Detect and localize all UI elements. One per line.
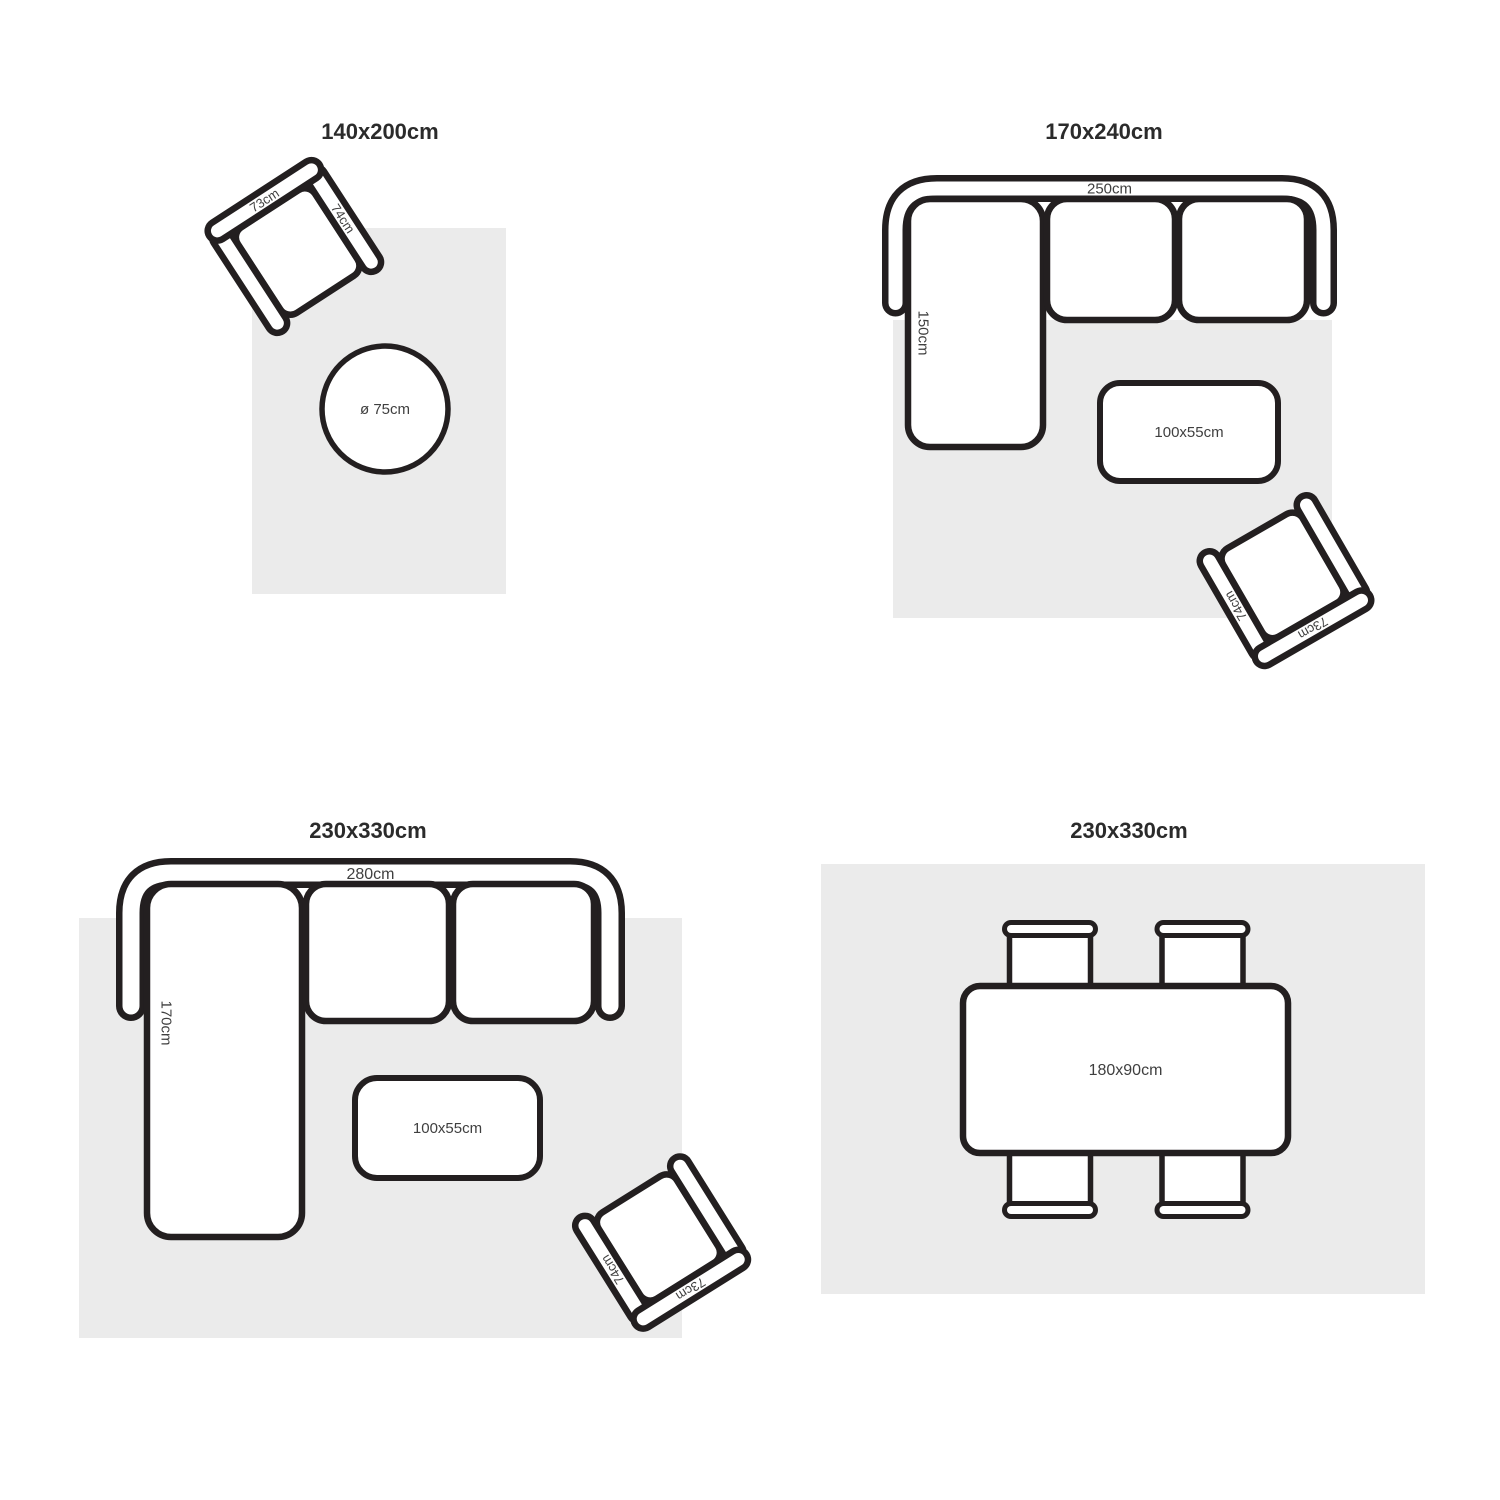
rug-size-title: 140x200cm xyxy=(321,119,438,144)
sofa-depth-dim: 170cm xyxy=(158,1000,175,1045)
coffee-table-dim: 100x55cm xyxy=(413,1120,482,1137)
sofa-depth-dim: 150cm xyxy=(915,310,932,355)
round-table: ø 75cm xyxy=(322,346,448,472)
rug-size-title: 170x240cm xyxy=(1045,119,1162,144)
coffee-table: 100x55cm xyxy=(1100,383,1278,481)
quadrant-230x330-dining: 230x330cm 180x90cm xyxy=(821,818,1425,1294)
dining-table-dim: 180x90cm xyxy=(1089,1062,1163,1079)
sofa-chaise-cushion xyxy=(147,884,302,1237)
coffee-table: 100x55cm xyxy=(355,1078,540,1178)
sofa-width-dim: 250cm xyxy=(1087,181,1132,198)
rug-size-guide: 140x200cm 73cm 74cm ø 75cm 170x240cm xyxy=(0,0,1500,1500)
rug-size-title: 230x330cm xyxy=(1070,818,1187,843)
quadrant-170x240: 170x240cm 250cm 150cm 100x55cm 73cm xyxy=(893,119,1365,666)
coffee-table-dim: 100x55cm xyxy=(1154,424,1223,441)
sofa-width-dim: 280cm xyxy=(346,866,394,883)
sofa-seat-cushion xyxy=(1179,199,1307,320)
quadrant-230x330-living: 230x330cm 280cm 170cm 100x55cm 73cm xyxy=(79,818,742,1338)
rug-size-title: 230x330cm xyxy=(309,818,426,843)
quadrant-140x200: 140x200cm 73cm 74cm ø 75cm xyxy=(213,119,506,594)
dining-table: 180x90cm xyxy=(963,986,1288,1153)
round-table-dim: ø 75cm xyxy=(360,401,410,418)
rug-size-guide-diagram: 140x200cm 73cm 74cm ø 75cm 170x240cm xyxy=(0,0,1500,1500)
sofa-seat-cushion xyxy=(306,884,449,1021)
sofa-seat-cushion xyxy=(453,884,594,1021)
sofa-seat-cushion xyxy=(1047,199,1175,320)
